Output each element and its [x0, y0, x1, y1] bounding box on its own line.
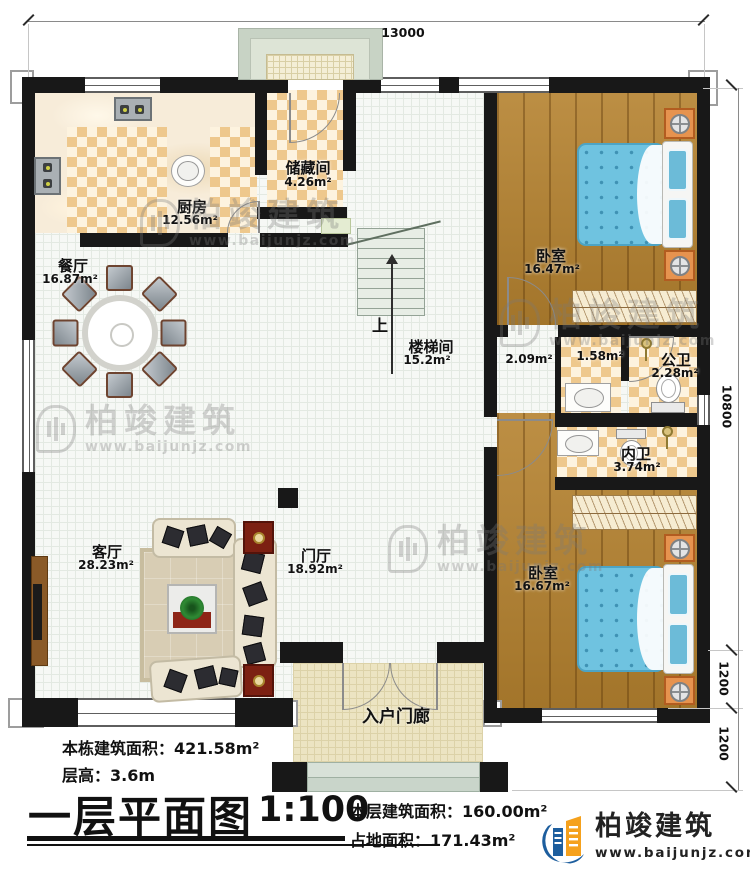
nightstand — [664, 534, 695, 562]
wall — [555, 413, 697, 427]
extension-line — [512, 790, 743, 791]
bed-pillow — [668, 573, 689, 616]
window — [85, 77, 160, 93]
dining-chair — [106, 372, 133, 398]
room-area-stairwell: 15.2m² — [403, 353, 450, 367]
lamp-icon — [670, 114, 690, 134]
room-area-kitchen: 12.56m² — [162, 213, 218, 227]
dim-top-width: 13000 — [368, 25, 438, 40]
table-center — [110, 323, 134, 347]
wall — [255, 93, 267, 175]
shower-hose — [666, 436, 668, 449]
floor-area: 本层建筑面积：160.00m² — [350, 798, 547, 822]
shoe-cabinet — [321, 218, 351, 234]
kitchen-sink-double — [114, 97, 152, 121]
pillow — [194, 665, 218, 689]
extension-line — [704, 24, 705, 77]
top-dimension-line — [28, 21, 705, 22]
sink-basin — [177, 161, 199, 181]
dining-chair — [161, 320, 187, 347]
bed — [577, 143, 665, 246]
window — [542, 708, 657, 723]
kitchen-stove — [34, 157, 61, 195]
room-area-dining: 16.87m² — [42, 272, 98, 286]
side-table — [243, 664, 274, 697]
wall — [437, 642, 497, 663]
up-arrow-icon — [386, 254, 398, 264]
sofa-chaise — [149, 655, 244, 703]
burner-icon — [120, 105, 129, 114]
tv-icon — [33, 584, 42, 640]
wall — [697, 77, 710, 395]
toilet-tank — [616, 429, 646, 439]
dining-chair — [53, 320, 79, 347]
kitchen-counter — [67, 127, 167, 233]
kitchen-round-sink — [171, 155, 205, 187]
wall — [657, 708, 710, 723]
bed-sheet — [637, 145, 663, 244]
wall — [555, 337, 561, 413]
nightstand — [664, 250, 695, 281]
window — [22, 340, 35, 472]
bed-headboard — [662, 141, 693, 248]
pillow — [218, 667, 238, 687]
room-area-storage: 4.26m² — [284, 175, 331, 189]
wall — [280, 642, 343, 663]
room-area-ensuite-bath: 3.74m² — [613, 460, 660, 474]
room-area-public-bath: 2.28m² — [651, 366, 698, 380]
dim-tick — [725, 781, 737, 793]
dining-chair — [106, 265, 133, 291]
right-dimension-line — [738, 88, 739, 790]
wall — [484, 337, 497, 417]
room-area-bedroom-bottom: 16.67m² — [514, 579, 570, 593]
window — [697, 395, 710, 425]
pillow — [242, 615, 265, 638]
bed-pillow — [668, 623, 689, 666]
porch-column — [272, 762, 307, 792]
wall — [343, 93, 356, 171]
bed-headboard — [663, 564, 694, 674]
floor-plan-page: 13000 10800 1200 1200 — [0, 0, 750, 880]
wall — [697, 425, 710, 723]
pillow — [243, 642, 266, 665]
room-area-foyer: 18.92m² — [287, 562, 343, 576]
bed-pillow — [667, 149, 688, 191]
wall — [555, 477, 697, 490]
plant-icon — [180, 596, 204, 620]
title-underline — [27, 836, 345, 841]
pillow — [186, 524, 209, 547]
porch-column — [480, 762, 508, 792]
brand-logo-icon — [540, 812, 588, 864]
wall — [260, 233, 348, 247]
brand-logo: 柏竣建筑 www.baijunjz.com — [540, 812, 750, 864]
room-area-inner-hall: 1.58m² — [576, 349, 623, 363]
burner-icon — [43, 163, 52, 172]
rear-bay-seat — [266, 54, 354, 80]
column — [278, 488, 298, 508]
stairs-up-label: 上 — [372, 312, 388, 336]
bed — [577, 566, 665, 672]
wall — [80, 233, 228, 247]
wall — [484, 708, 542, 723]
sink-basin — [565, 435, 593, 453]
sink-vanity — [557, 430, 599, 456]
sofa-main — [233, 538, 277, 668]
wardrobe — [572, 495, 697, 530]
window — [459, 77, 549, 93]
pillow — [163, 669, 187, 693]
lamp-icon — [670, 256, 690, 276]
bed-pillow — [667, 198, 688, 240]
pillow — [162, 526, 185, 549]
room-label-entry-porch: 入户门廊 — [362, 702, 430, 727]
wall — [484, 447, 497, 708]
room-area-living: 28.23m² — [78, 558, 134, 572]
lamp-icon — [253, 532, 265, 544]
nightstand — [664, 676, 695, 705]
pillow — [209, 526, 232, 549]
bed-sheet — [637, 568, 663, 670]
logo-url: www.baijunjz.com — [595, 845, 750, 861]
wall — [439, 77, 459, 93]
footprint-area: 占地面积：171.43m² — [350, 827, 515, 851]
sink-vanity — [565, 383, 611, 412]
toilet-tank — [651, 402, 685, 413]
pillow — [242, 581, 268, 607]
sofa-top — [152, 518, 236, 558]
side-table — [243, 521, 274, 554]
wall — [22, 77, 35, 340]
wall — [22, 698, 78, 727]
lamp-icon — [253, 675, 265, 687]
dim-steps-depth: 1200 — [717, 724, 732, 764]
stair-direction-line — [391, 262, 393, 374]
dim-porch-depth: 1200 — [717, 659, 732, 699]
entry-steps — [307, 762, 480, 792]
wall — [484, 325, 508, 337]
total-building-area: 本栋建筑面积：421.58m² — [62, 735, 259, 759]
dim-right-main: 10800 — [720, 375, 735, 439]
sink-basin — [574, 388, 604, 408]
wardrobe — [572, 290, 697, 323]
window — [381, 77, 439, 93]
dining-table — [82, 295, 158, 371]
extension-line — [28, 24, 29, 77]
wall — [235, 698, 293, 727]
room-area-bedroom-top: 16.47m² — [524, 262, 580, 276]
logo-brand: 柏竣建筑 — [595, 812, 750, 842]
wall — [549, 77, 710, 93]
burner-icon — [135, 105, 144, 114]
dim-tick — [725, 79, 737, 91]
lamp-icon — [670, 682, 690, 702]
room-area-corridor: 2.09m² — [505, 352, 552, 366]
burner-icon — [43, 179, 52, 188]
lamp-icon — [670, 539, 690, 559]
wall — [484, 93, 497, 325]
nightstand — [664, 108, 695, 139]
